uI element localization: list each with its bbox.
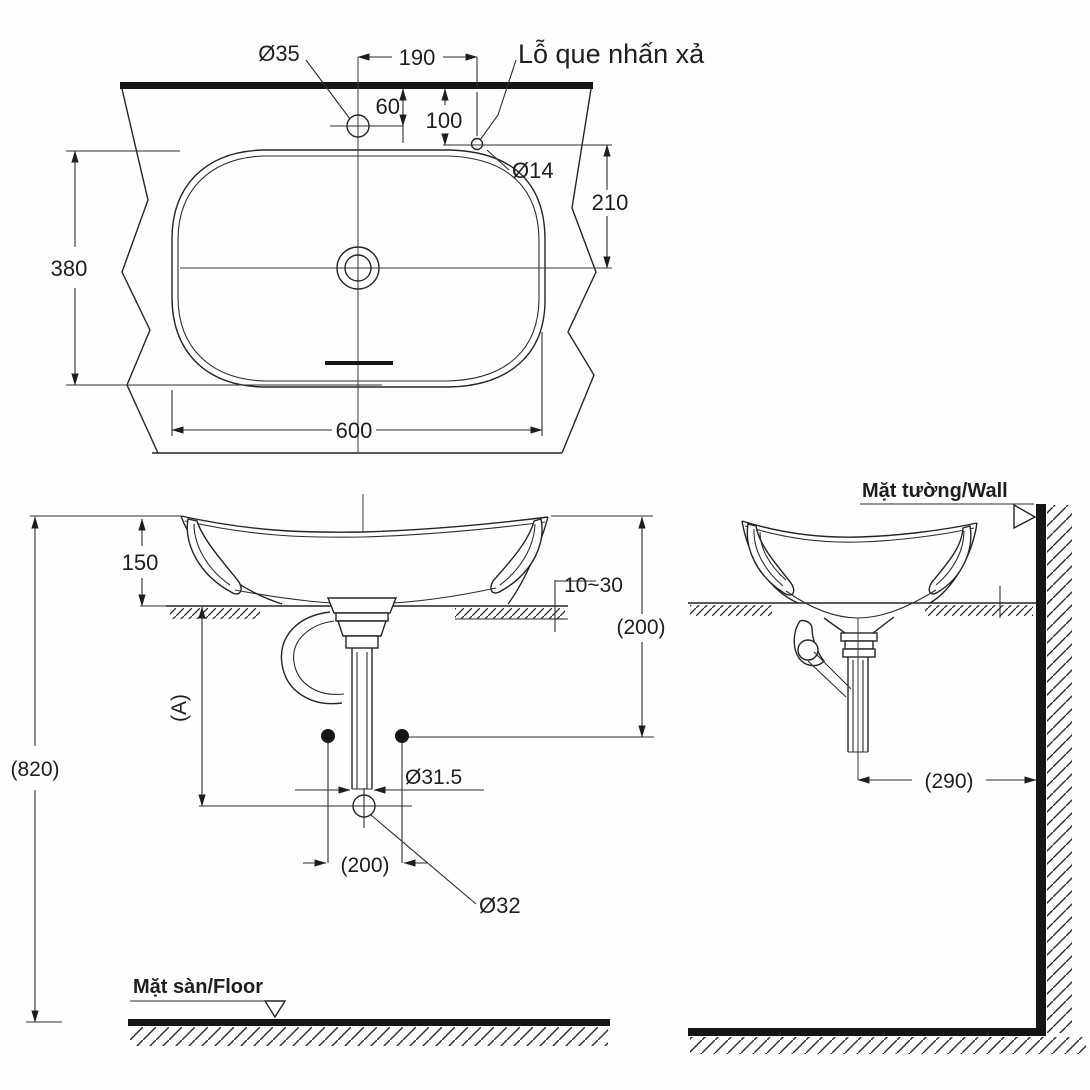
dim-label-A: (A) xyxy=(168,694,191,722)
rod-hole-callout-leader xyxy=(480,60,516,140)
floor-hatch xyxy=(130,1027,608,1046)
counter-front-edge xyxy=(120,82,593,89)
side-floor-hatch xyxy=(690,1037,1086,1054)
dim-label-1030: 10~30 xyxy=(564,574,623,597)
side-rim-top-inner xyxy=(745,526,974,542)
side-funnel-right xyxy=(873,617,894,633)
dim-label-600: 600 xyxy=(336,418,373,443)
side-counter-hatch-right xyxy=(925,605,1033,616)
basin-dimension-drawing: 190 60 100 210 380 600 Ø35 Lỗ que nhấn x… xyxy=(0,0,1090,1090)
dim-label-210: 210 xyxy=(592,190,629,215)
side-floor-line xyxy=(688,1028,1046,1036)
dim-label-290: (290) xyxy=(924,770,973,793)
counter-section-hatch-left xyxy=(170,608,260,619)
dim-label-faucet-dia: Ø35 xyxy=(258,41,300,66)
floor-label: Mặt sàn/Floor xyxy=(133,976,263,998)
wall-line xyxy=(1036,504,1046,1035)
overflow-hose-outer xyxy=(281,612,342,704)
anchor-dot-left xyxy=(321,729,335,743)
wall-hatch xyxy=(1047,505,1072,1033)
rod-hole-callout-label: Lỗ que nhấn xả xyxy=(518,38,705,69)
basin-rim-top xyxy=(181,516,548,532)
technical-drawing-page: 190 60 100 210 380 600 Ø35 Lỗ que nhấn x… xyxy=(0,0,1090,1090)
dim-label-200-bottom: (200) xyxy=(340,854,389,877)
side-drain-nut xyxy=(843,649,875,657)
counter-break-line-left xyxy=(122,89,158,453)
counter-section-hatch-right xyxy=(455,608,565,619)
side-inner-bottom xyxy=(786,590,936,618)
dim-label-200-right: (200) xyxy=(616,616,665,639)
rod-hole xyxy=(472,139,483,150)
dim-label-60: 60 xyxy=(376,94,400,119)
anchor-dot-right xyxy=(395,729,409,743)
side-counter-hatch-left xyxy=(690,605,772,616)
drain-flange xyxy=(328,598,396,613)
counter-break-line-right xyxy=(562,89,596,453)
dim-label-outlet-dia: Ø32 xyxy=(479,893,521,918)
popup-ball xyxy=(798,640,818,660)
dim-label-820: (820) xyxy=(10,758,59,781)
overflow-hose-inner xyxy=(294,621,344,694)
floor-line xyxy=(128,1019,610,1026)
dim-label-190: 190 xyxy=(399,45,436,70)
dim-label-pipe-dia: Ø31.5 xyxy=(405,766,462,789)
dim-label-150: 150 xyxy=(122,550,159,575)
side-drain-washer xyxy=(845,641,873,649)
wall-label: Mặt tường/Wall xyxy=(862,480,1008,502)
front-view: 150 (820) (A) 10~30 (200) (200) xyxy=(10,494,665,1046)
floor-level-symbol xyxy=(265,1001,285,1017)
side-funnel-left xyxy=(824,618,845,633)
dim-label-rod-dia: Ø14 xyxy=(512,158,554,183)
drain-coupling xyxy=(346,636,378,648)
dim-label-380: 380 xyxy=(51,256,88,281)
side-drain-flange xyxy=(841,633,877,641)
side-view: Mặt tường/Wall xyxy=(688,480,1086,1054)
wall-level-symbol xyxy=(1014,505,1035,528)
top-view: 190 60 100 210 380 600 Ø35 Lỗ que nhấn x… xyxy=(51,38,706,453)
drain-nut xyxy=(338,621,386,636)
side-right-rim-section xyxy=(929,526,970,594)
dim-label-100: 100 xyxy=(426,108,463,133)
faucet-dia-leader xyxy=(306,60,350,119)
drain-washer xyxy=(336,613,388,621)
